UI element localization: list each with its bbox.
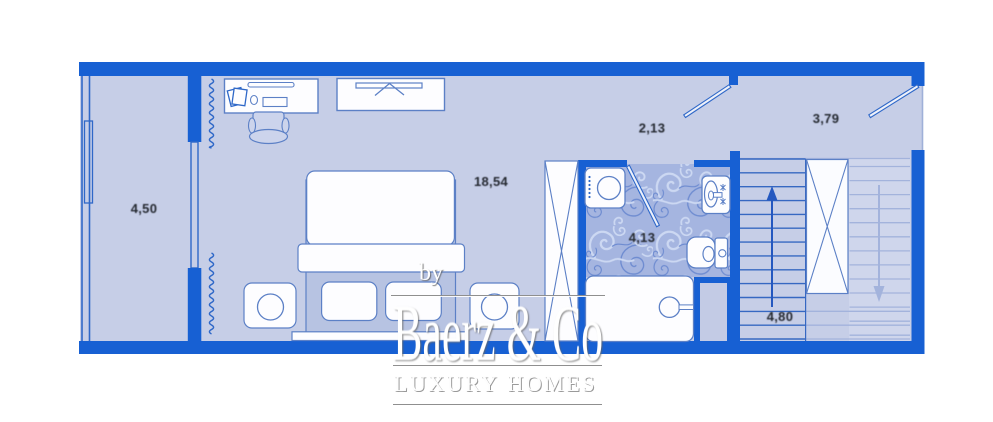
svg-text:4,50: 4,50 (131, 201, 158, 216)
svg-text:3,79: 3,79 (813, 111, 840, 126)
svg-text:4,13: 4,13 (629, 230, 656, 245)
svg-text:2,13: 2,13 (639, 121, 666, 136)
svg-text:4,80: 4,80 (767, 309, 794, 324)
svg-text:18,54: 18,54 (474, 174, 509, 189)
